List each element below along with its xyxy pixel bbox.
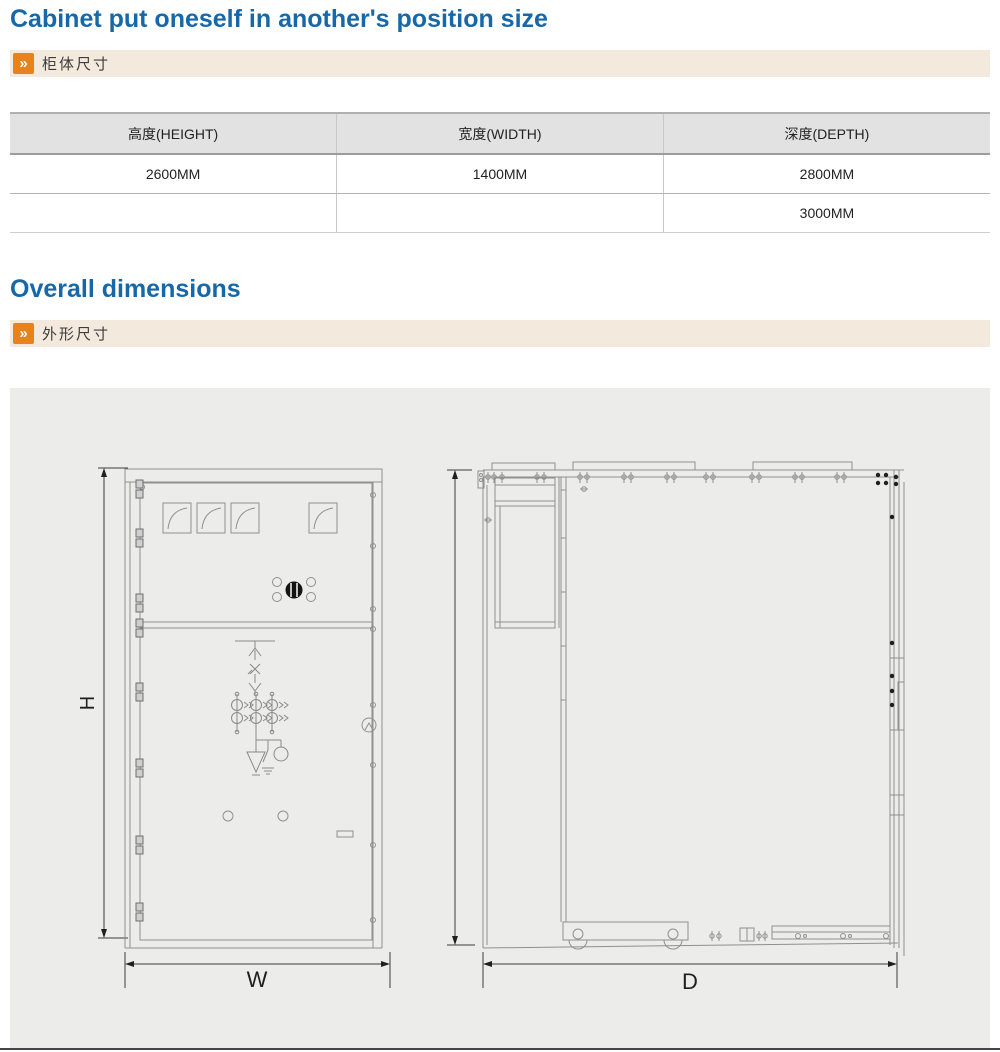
door-lock (362, 718, 376, 732)
table-row: 3000MM (10, 194, 990, 233)
partition-column (555, 477, 566, 922)
rear-bolt-dots (876, 473, 898, 707)
cabinet-size-title: Cabinet put oneself in another's positio… (10, 5, 548, 34)
push-button (278, 811, 288, 821)
push-button (223, 811, 233, 821)
table-cell: 1400MM (337, 154, 664, 194)
table-row: 2600MM 1400MM 2800MM (10, 154, 990, 194)
table-header-row: 高度(HEIGHT) 宽度(WIDTH) 深度(DEPTH) (10, 113, 990, 154)
table-cell (337, 194, 664, 233)
table-cell: 2600MM (10, 154, 337, 194)
drawing-panel: H (10, 388, 990, 1048)
cabinet-size-band-label: 柜体尺寸 (42, 53, 110, 74)
rotary-knob (286, 582, 302, 598)
table-cell: 3000MM (663, 194, 990, 233)
instrument-compartment (484, 478, 555, 628)
table-cell: 2800MM (663, 154, 990, 194)
mimic-diagram (232, 641, 289, 775)
roof-bolts (486, 472, 847, 491)
overall-dimensions-band-label: 外形尺寸 (42, 323, 110, 344)
table-header-width: 宽度(WIDTH) (337, 113, 664, 154)
catalog-page: Cabinet put oneself in another's positio… (0, 0, 1000, 1052)
panel-meters (163, 503, 337, 533)
overall-dimensions-title: Overall dimensions (10, 275, 241, 304)
side-view-drawing: D (447, 462, 904, 994)
double-chevron-icon: » (13, 53, 34, 74)
cabinet-size-band: » 柜体尺寸 (10, 50, 990, 77)
width-label: W (247, 967, 268, 992)
rear-wall (876, 470, 904, 956)
height-dimension (98, 468, 128, 938)
height-label: H (77, 696, 99, 710)
dimension-drawings: H (10, 388, 990, 1048)
front-view-drawing: H (77, 468, 390, 992)
base-truck (483, 922, 898, 949)
table-cell (10, 194, 337, 233)
depth-label: D (682, 969, 698, 994)
double-chevron-icon: » (13, 323, 34, 344)
table-header-height: 高度(HEIGHT) (10, 113, 337, 154)
cabinet-dimensions-table: 高度(HEIGHT) 宽度(WIDTH) 深度(DEPTH) 2600MM 14… (10, 112, 990, 233)
table-header-depth: 深度(DEPTH) (663, 113, 990, 154)
door-handle (337, 831, 353, 837)
side-height-dimension (447, 470, 475, 945)
overall-dimensions-band: » 外形尺寸 (10, 320, 990, 347)
bottom-rule (0, 1048, 1000, 1050)
